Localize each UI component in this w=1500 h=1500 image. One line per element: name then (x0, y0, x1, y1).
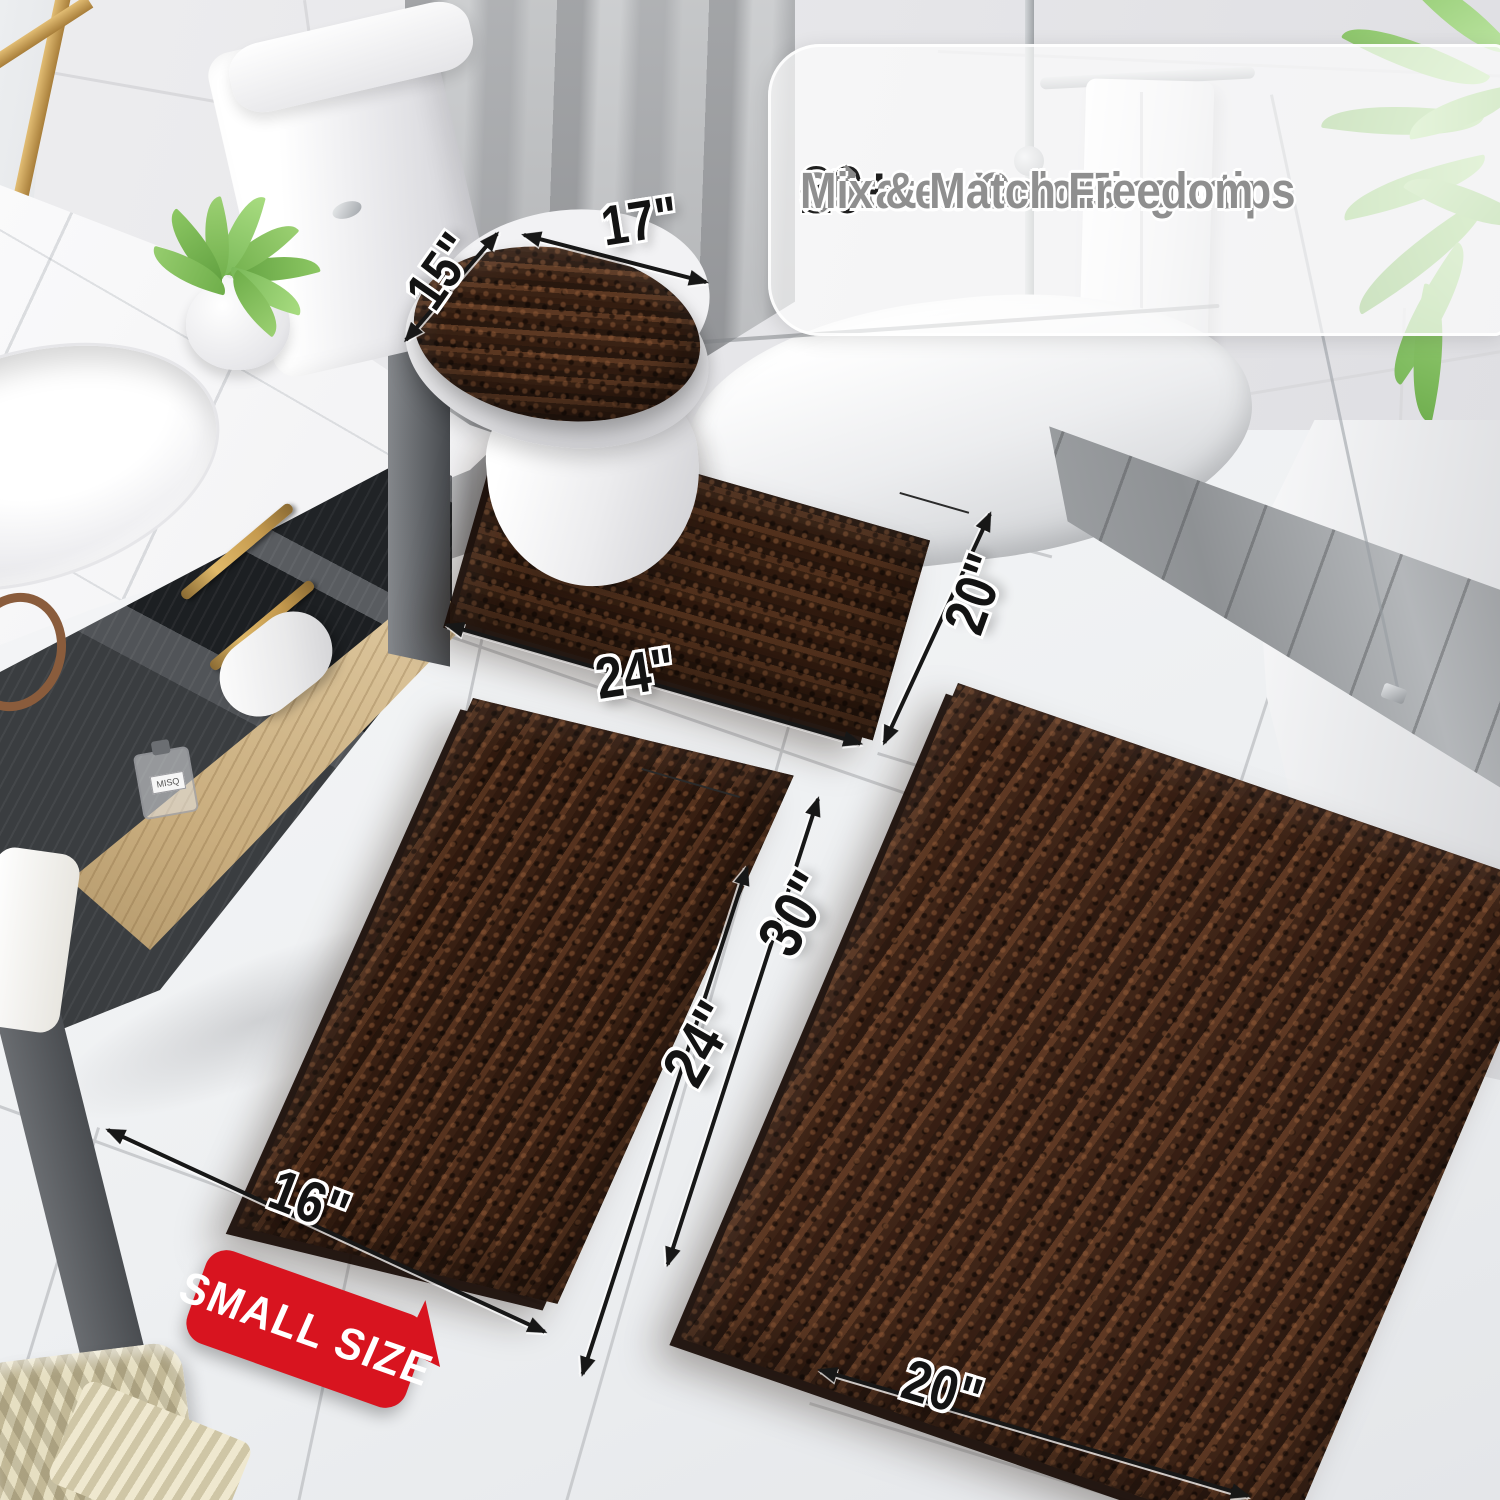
feature-callout: 20+ Sizes at Your Fingertips 30+ Curated… (768, 44, 1500, 336)
potted-plant-left (128, 146, 348, 376)
dimension-label-contour-length: 24" (591, 634, 680, 713)
bottle-cap (151, 739, 171, 756)
dimension-label-lid-length: 17" (597, 182, 683, 258)
bathroom-product-photo: MISQ (0, 0, 1500, 1500)
bottle-label: MISQ (150, 771, 187, 795)
perfume-bottle: MISQ (133, 746, 200, 821)
callout-text: Mix & Match Freedom (800, 161, 1253, 220)
